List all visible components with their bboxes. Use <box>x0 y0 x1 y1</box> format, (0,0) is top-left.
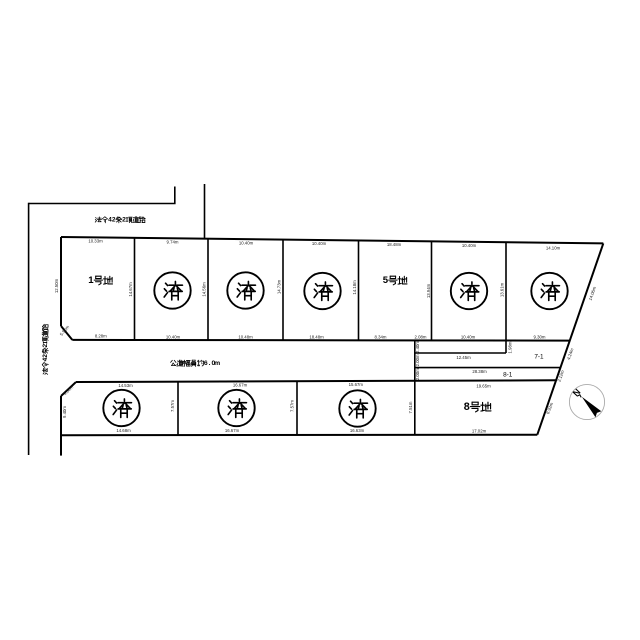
svg-text:14.53m: 14.53m <box>118 383 133 388</box>
svg-text:18.48m: 18.48m <box>309 334 324 339</box>
svg-text:16.63m: 16.63m <box>350 428 365 433</box>
svg-text:10.33m: 10.33m <box>88 239 103 244</box>
svg-text:10.40m: 10.40m <box>462 243 477 248</box>
svg-text:10.48m: 10.48m <box>238 334 253 339</box>
svg-text:10.40m: 10.40m <box>239 240 254 245</box>
svg-text:.: . <box>209 360 211 367</box>
svg-text:19.65m: 19.65m <box>476 383 491 388</box>
svg-text:8.28m: 8.28m <box>95 334 107 339</box>
svg-text:8-1: 8-1 <box>503 371 513 378</box>
svg-text:7.57m: 7.57m <box>170 400 175 412</box>
svg-text:15.67m: 15.67m <box>349 382 364 387</box>
svg-text:2.40m: 2.40m <box>415 341 420 353</box>
svg-text:10.40m: 10.40m <box>166 334 181 339</box>
svg-text:14.73m: 14.73m <box>277 279 282 294</box>
svg-text:10.40m: 10.40m <box>312 241 327 246</box>
svg-text:17.02m: 17.02m <box>472 428 487 433</box>
svg-text:5: 5 <box>383 275 389 286</box>
svg-text:8.34m: 8.34m <box>375 335 387 340</box>
svg-text:13.61m: 13.61m <box>499 282 504 297</box>
svg-text:9.40m: 9.40m <box>62 406 67 418</box>
svg-text:7.57m: 7.57m <box>289 400 294 412</box>
svg-text:16.67m: 16.67m <box>233 382 248 387</box>
svg-text:14.56m: 14.56m <box>202 282 207 297</box>
svg-text:14.10m: 14.10m <box>546 245 561 250</box>
svg-text:12.45m: 12.45m <box>456 355 471 360</box>
svg-text:2.08m: 2.08m <box>415 335 427 340</box>
svg-text:2.00m: 2.00m <box>415 354 420 366</box>
svg-text:14.18m: 14.18m <box>352 280 357 295</box>
svg-text:14.68m: 14.68m <box>116 428 131 433</box>
svg-text:14.67m: 14.67m <box>128 282 133 297</box>
svg-text:7-1: 7-1 <box>534 353 544 360</box>
svg-text:2: 2 <box>112 216 116 223</box>
svg-text:8: 8 <box>464 401 470 413</box>
svg-text:2: 2 <box>42 354 49 358</box>
svg-text:1.98m: 1.98m <box>507 341 512 353</box>
svg-text:13.94m: 13.94m <box>426 283 431 298</box>
svg-text:7.51m: 7.51m <box>408 401 413 413</box>
svg-text:9.74m: 9.74m <box>167 240 179 245</box>
svg-text:9.30m: 9.30m <box>534 335 546 340</box>
svg-text:28.38m: 28.38m <box>472 369 487 374</box>
svg-text:2: 2 <box>122 216 126 223</box>
svg-text:1: 1 <box>88 275 94 286</box>
svg-text:2.00m: 2.00m <box>415 368 420 380</box>
svg-text:6: 6 <box>204 360 208 367</box>
svg-text:10.40m: 10.40m <box>461 335 476 340</box>
svg-text:2: 2 <box>42 343 49 347</box>
svg-text:18.48m: 18.48m <box>387 242 402 247</box>
svg-text:12.50m: 12.50m <box>54 278 59 293</box>
svg-text:m: m <box>214 360 220 367</box>
svg-text:16.67m: 16.67m <box>225 428 240 433</box>
